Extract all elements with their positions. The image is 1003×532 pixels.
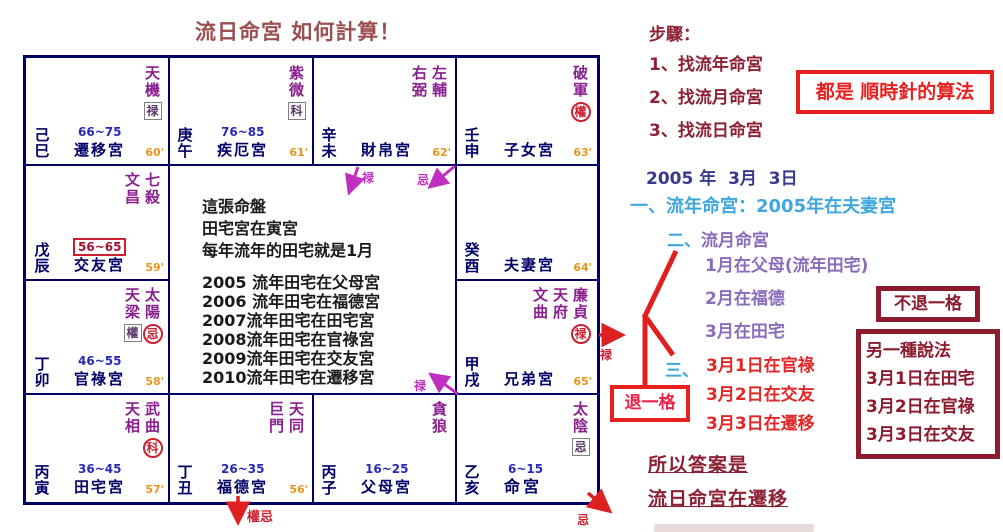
stem-branch: 己巳	[34, 127, 50, 159]
palace-name: 疾厄宮	[217, 139, 268, 160]
palace-cell-xu: 文曲天府廉貞禄甲戌兄弟宮65'	[456, 280, 597, 394]
minute-mark: 63'	[573, 146, 592, 159]
palace-cell-chen: 文昌七殺戊辰56~65交友宮59'	[26, 165, 169, 280]
stem-branch: 辛未	[321, 127, 337, 159]
step-back-box: 退一格	[610, 385, 690, 422]
palace-cell-mao: 天梁權太陽忌丁卯46~55官祿宮58'	[26, 280, 169, 394]
star-name: 武曲	[144, 401, 161, 435]
date-line: 2005 年 3月 3日	[646, 164, 798, 189]
month-list: 1月在父母(流年田宅)2月在福德3月在田宅	[705, 250, 868, 349]
star-group: 文昌七殺	[124, 172, 161, 206]
stem-branch: 壬申	[464, 127, 480, 159]
palace-cell-si: 天機禄己巳66~75遷移宮60'	[26, 58, 169, 165]
ziwei-chart: 天機禄己巳66~75遷移宮60'紫微科庚午76~85疾厄宮61'右弼左輔辛未財帛…	[23, 55, 600, 505]
star-column: 太陰忌	[572, 401, 589, 456]
star-name: 天府	[552, 287, 569, 321]
stem-branch: 庚午	[177, 127, 193, 159]
center-note-line: 2005 流年田宅在父母宮	[202, 273, 456, 292]
step-item: 3、找流日命宮	[649, 115, 763, 148]
star-column: 廉貞禄	[572, 287, 589, 344]
ji-label-corner: 忌	[577, 511, 589, 528]
star-name: 文曲	[532, 287, 549, 321]
alternative-method-box: 另一種說法3月1日在田宅3月2日在官祿3月3日在交友	[856, 329, 1000, 459]
star-name: 廉貞	[572, 287, 589, 321]
star-column: 破軍權	[572, 65, 589, 122]
transform-mark-box: 禄	[144, 102, 162, 120]
palace-name: 命宮	[504, 473, 542, 497]
age-range: 16~25	[365, 462, 408, 476]
star-group: 貪狼	[431, 401, 448, 435]
steps-title: 步驟：	[649, 20, 700, 45]
alternative-method-line: 3月3日在交友	[866, 421, 993, 449]
palace-name: 交友宮	[74, 254, 125, 275]
star-group: 天梁權太陽忌	[124, 287, 161, 344]
palace-cell-chou: 巨門天同丁丑26~35福德宮56'	[169, 394, 313, 502]
star-group: 天相武曲科	[124, 401, 161, 458]
star-name: 巨門	[268, 401, 285, 435]
star-column: 七殺	[144, 172, 161, 206]
stem-branch: 乙亥	[464, 464, 480, 496]
palace-name: 福德宮	[217, 476, 268, 497]
star-group: 巨門天同	[268, 401, 305, 435]
ji-label-top: 忌	[417, 171, 429, 188]
minute-mark: 65'	[573, 375, 592, 388]
age-range: 76~85	[221, 125, 264, 139]
clockwise-note-box: 都是 順時針的算法	[796, 70, 994, 114]
star-name: 紫微	[288, 65, 305, 99]
center-note-line: 2007流年田宅在田宅宮	[202, 311, 456, 330]
star-name: 太陽	[144, 287, 161, 321]
day-title-number: 三、	[665, 356, 699, 381]
chart-center-notes: 這張命盤田宅宮在寅宮每年流年的田宅就是1月2005 流年田宅在父母宮2006 流…	[169, 165, 456, 394]
palace-name: 兄弟宮	[504, 368, 555, 389]
star-group: 天機禄	[144, 65, 161, 120]
transform-mark-circle: 權	[571, 102, 591, 122]
star-group: 文曲天府廉貞禄	[532, 287, 589, 344]
star-name: 文昌	[124, 172, 141, 206]
palace-cell-shen: 破軍權壬申子女宮63'	[456, 58, 597, 165]
stem-branch: 丁卯	[34, 356, 50, 388]
cutoff-text-remnant	[654, 524, 814, 532]
minute-mark: 62'	[432, 146, 451, 159]
month-item: 3月在田宅	[705, 316, 868, 349]
answer-result: 流日命宮在遷移	[648, 484, 788, 511]
star-column: 太陽忌	[144, 287, 161, 344]
center-note-line: 2006 流年田宅在福德宮	[202, 292, 456, 311]
transform-mark-circle: 禄	[571, 324, 591, 344]
star-name: 天同	[288, 401, 305, 435]
step-item: 2、找流月命宮	[649, 82, 763, 115]
lu-label-bottom: 禄	[414, 377, 426, 394]
minute-mark: 56'	[289, 483, 308, 496]
star-column: 天相	[124, 401, 141, 458]
year-palace-line: 一、流年命宮：2005年在夫妻宮	[630, 192, 896, 218]
palace-name: 夫妻宮	[504, 254, 555, 275]
star-column: 文曲	[532, 287, 549, 344]
lu-label-top: 禄	[362, 169, 374, 186]
minute-mark: 64'	[573, 261, 592, 274]
palace-name: 官祿宮	[74, 368, 125, 389]
day-item: 3月1日在官祿	[706, 352, 815, 381]
star-column: 左輔	[431, 65, 448, 99]
stem-branch: 癸酉	[464, 242, 480, 274]
palace-name: 田宅宮	[74, 476, 125, 497]
star-column: 文昌	[124, 172, 141, 206]
stem-branch: 丁丑	[177, 464, 193, 496]
star-group: 太陰忌	[572, 401, 589, 456]
day-item: 3月2日在交友	[706, 381, 815, 410]
center-note-line: 每年流年的田宅就是1月	[202, 240, 456, 262]
palace-cell-you: 癸酉夫妻宮64'	[456, 165, 597, 280]
stem-branch: 戊辰	[34, 242, 50, 274]
age-range: 26~35	[221, 462, 264, 476]
palace-name: 財帛宮	[361, 139, 412, 160]
day-item: 3月3日在遷移	[706, 410, 815, 439]
palace-name: 子女宮	[504, 139, 555, 160]
star-column: 右弼	[411, 65, 428, 99]
transform-mark-box: 科	[288, 102, 306, 120]
star-column: 武曲科	[144, 401, 161, 458]
star-name: 破軍	[572, 65, 589, 99]
center-note-line: 2009流年田宅在交友宮	[202, 349, 456, 368]
month-title-text: 流月命宮	[701, 231, 769, 251]
step-item: 1、找流年命宮	[649, 49, 763, 82]
center-note-line: 這張命盤	[202, 196, 456, 218]
star-group: 紫微科	[288, 65, 305, 120]
age-range: 66~75	[78, 125, 121, 139]
star-name: 天相	[124, 401, 141, 435]
age-range: 36~45	[78, 462, 121, 476]
star-column: 貪狼	[431, 401, 448, 435]
star-column: 天梁權	[124, 287, 141, 344]
steps-list: 1、找流年命宮2、找流月命宮3、找流日命宮	[649, 49, 763, 148]
stem-branch: 丙子	[321, 464, 337, 496]
minute-mark: 61'	[289, 146, 308, 159]
month-title-number: 二、	[667, 231, 701, 251]
transform-mark-box: 忌	[572, 438, 590, 456]
center-note-line: 田宅宮在寅宮	[202, 218, 456, 240]
alternative-method-line: 3月1日在田宅	[866, 365, 993, 393]
center-note-line: 2008流年田宅在官祿宮	[202, 330, 456, 349]
month-item: 1月在父母(流年田宅)	[705, 250, 868, 283]
stem-branch: 丙寅	[34, 464, 50, 496]
star-column: 天府	[552, 287, 569, 344]
star-column: 天同	[288, 401, 305, 435]
star-column: 巨門	[268, 401, 285, 435]
palace-name: 父母宮	[361, 476, 412, 497]
month-item: 2月在福德	[705, 283, 868, 316]
alternative-method-line: 3月2日在官祿	[866, 393, 993, 421]
minute-mark: 57'	[145, 483, 164, 496]
star-group: 右弼左輔	[411, 65, 448, 99]
star-column: 天機禄	[144, 65, 161, 120]
alternative-method-line: 另一種說法	[866, 337, 993, 365]
star-name: 右弼	[411, 65, 428, 99]
palace-cell-hai: 太陰忌乙亥6~15命宮	[456, 394, 597, 502]
star-name: 太陰	[572, 401, 589, 435]
star-column: 紫微科	[288, 65, 305, 120]
star-group: 破軍權	[572, 65, 589, 122]
palace-name: 遷移宮	[74, 139, 125, 160]
palace-cell-yin: 天相武曲科丙寅36~45田宅宮57'	[26, 394, 169, 502]
no-step-back-box: 不退一格	[876, 286, 980, 322]
star-name: 貪狼	[431, 401, 448, 435]
palace-cell-zi: 貪狼丙子16~25父母宮	[313, 394, 456, 502]
age-range: 46~55	[78, 354, 121, 368]
palace-cell-wei: 右弼左輔辛未財帛宮62'	[313, 58, 456, 165]
minute-mark: 58'	[145, 375, 164, 388]
quanji-label: 權忌	[247, 506, 273, 525]
palace-cell-wu: 紫微科庚午76~85疾厄宮61'	[169, 58, 313, 165]
stem-branch: 甲戌	[464, 356, 480, 388]
page-title: 流日命宮 如何計算！	[195, 16, 401, 46]
transform-mark-circle: 科	[143, 438, 163, 458]
minute-mark: 59'	[145, 261, 164, 274]
star-name: 天機	[144, 65, 161, 99]
lu-label-right: 禄	[600, 346, 612, 363]
answer-intro: 所以答案是	[648, 450, 748, 477]
day-list: 3月1日在官祿3月2日在交友3月3日在遷移	[706, 352, 815, 439]
star-name: 左輔	[431, 65, 448, 99]
center-note-line	[202, 262, 456, 273]
star-name: 七殺	[144, 172, 161, 206]
transform-mark-circle: 忌	[143, 324, 163, 344]
transform-mark-box: 權	[124, 324, 142, 342]
lesson-page: 流日命宮 如何計算！ 天機禄己巳66~75遷移宮60'紫微科庚午76~85疾厄宮…	[0, 0, 1003, 532]
star-name: 天梁	[124, 287, 141, 321]
step-back-connector	[645, 251, 676, 355]
minute-mark: 60'	[145, 146, 164, 159]
month-palace-title: 二、流月命宮	[667, 226, 769, 251]
